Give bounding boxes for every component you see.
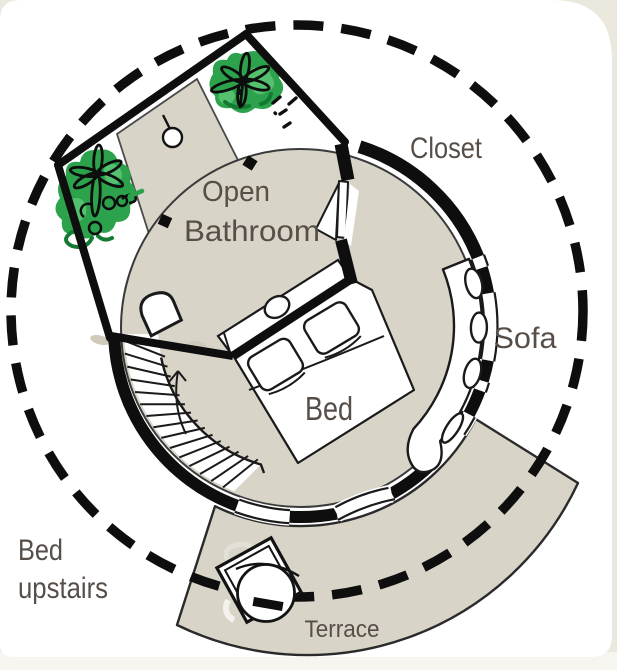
svg-text:upstairs: upstairs <box>18 572 108 605</box>
svg-text:Sofa: Sofa <box>494 322 557 355</box>
svg-text:Bed: Bed <box>305 390 353 427</box>
svg-text:Terrace: Terrace <box>305 616 380 643</box>
svg-text:Closet: Closet <box>410 132 483 165</box>
svg-text:Bed: Bed <box>18 534 63 567</box>
svg-text:Open: Open <box>202 176 270 208</box>
svg-text:Bathroom: Bathroom <box>184 215 320 248</box>
